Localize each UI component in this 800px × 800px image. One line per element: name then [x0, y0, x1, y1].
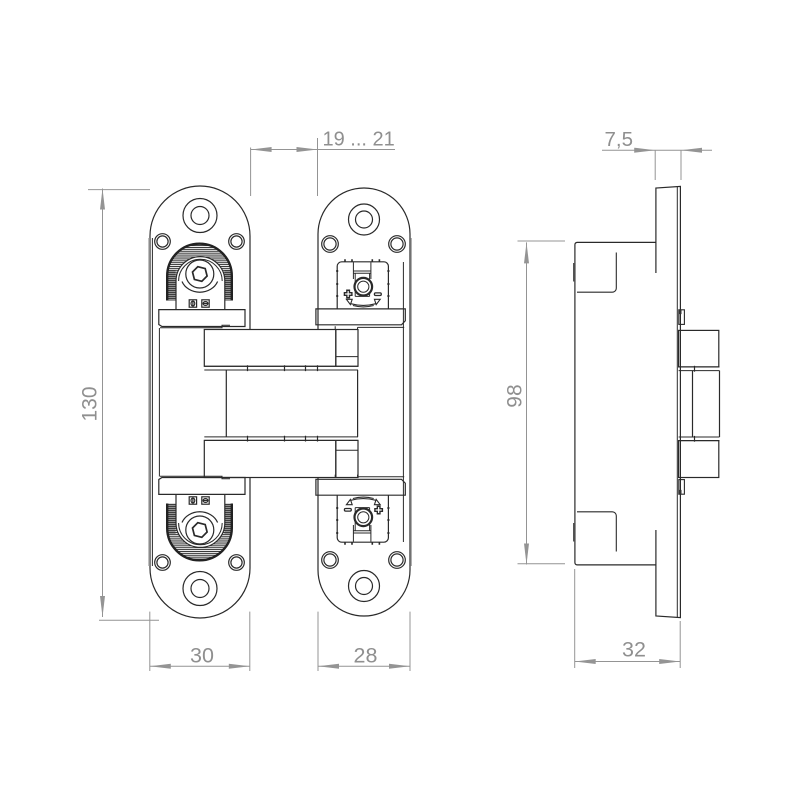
svg-text:98: 98	[504, 384, 527, 407]
svg-text:28: 28	[354, 644, 378, 668]
svg-text:30: 30	[190, 644, 214, 668]
svg-text:19 ... 21: 19 ... 21	[323, 129, 395, 151]
svg-text:7,5: 7,5	[605, 128, 634, 151]
svg-text:32: 32	[622, 638, 646, 662]
svg-text:130: 130	[79, 386, 102, 421]
